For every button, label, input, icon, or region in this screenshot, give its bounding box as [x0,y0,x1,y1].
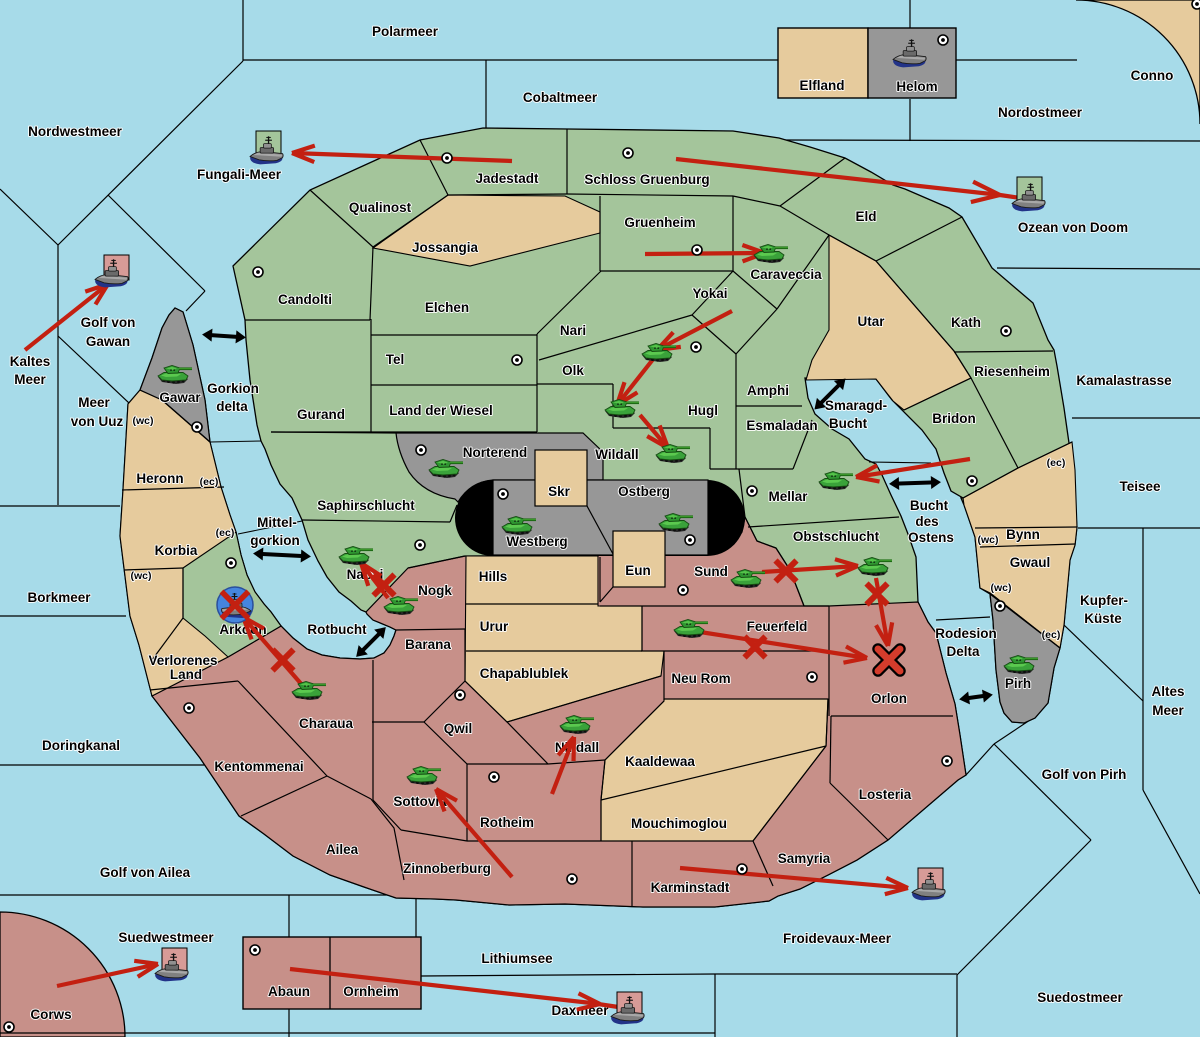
svg-text:Mittel-: Mittel- [257,515,297,530]
svg-text:Delta: Delta [946,644,980,659]
svg-text:Urur: Urur [480,619,509,634]
svg-text:Kupfer-: Kupfer- [1080,593,1128,608]
svg-text:Küste: Küste [1084,611,1122,626]
svg-text:Land: Land [170,667,202,682]
svg-text:Tel: Tel [386,352,405,367]
svg-text:Meer: Meer [14,372,46,387]
svg-text:Meer: Meer [1152,703,1184,718]
svg-text:Golf von Ailea: Golf von Ailea [100,865,191,880]
svg-text:Eld: Eld [855,209,876,224]
svg-text:Conno: Conno [1131,68,1174,83]
svg-text:Riesenheim: Riesenheim [974,364,1050,379]
svg-text:Mellar: Mellar [768,489,808,504]
svg-text:Land der Wiesel: Land der Wiesel [389,403,492,418]
svg-text:Pirh: Pirh [1005,676,1031,691]
svg-text:Heronn: Heronn [136,471,183,486]
svg-text:Helom: Helom [896,79,937,94]
svg-text:Ailea: Ailea [326,842,359,857]
svg-text:Rotbucht: Rotbucht [307,622,367,637]
svg-text:Cobaltmeer: Cobaltmeer [523,90,598,105]
svg-text:Sund: Sund [694,564,728,579]
svg-text:Ostberg: Ostberg [618,484,670,499]
svg-text:Froidevaux-Meer: Froidevaux-Meer [783,931,892,946]
svg-text:Rotheim: Rotheim [480,815,534,830]
svg-text:Rodesion: Rodesion [935,626,997,641]
svg-text:Nari: Nari [560,323,586,338]
svg-text:Kath: Kath [951,315,981,330]
svg-text:Abaun: Abaun [268,984,310,999]
svg-text:Norterend: Norterend [463,445,528,460]
svg-text:Ozean von Doom: Ozean von Doom [1018,220,1128,235]
svg-text:Jossangia: Jossangia [412,240,479,255]
svg-text:Kaaldewaa: Kaaldewaa [625,754,695,769]
svg-text:Gwaul: Gwaul [1010,555,1051,570]
svg-text:(wc): (wc) [978,534,999,546]
svg-text:Schloss Gruenburg: Schloss Gruenburg [584,172,709,187]
svg-text:Korbia: Korbia [155,543,198,558]
svg-text:Doringkanal: Doringkanal [42,738,120,753]
svg-text:Suedwestmeer: Suedwestmeer [118,930,214,945]
svg-text:Ostens: Ostens [908,530,954,545]
svg-text:(ec): (ec) [216,527,235,539]
svg-text:(ec): (ec) [1047,457,1066,469]
svg-text:Corws: Corws [30,1007,71,1022]
svg-text:Saphirschlucht: Saphirschlucht [317,498,415,513]
svg-text:Losteria: Losteria [859,787,912,802]
svg-text:(ec): (ec) [200,476,219,488]
svg-text:(ec): (ec) [1042,629,1061,641]
svg-text:Wildall: Wildall [595,447,638,462]
svg-text:Samyria: Samyria [778,851,831,866]
svg-text:Olk: Olk [562,363,584,378]
svg-text:delta: delta [216,399,248,414]
svg-text:(wc): (wc) [133,415,154,427]
svg-text:Suedostmeer: Suedostmeer [1037,990,1123,1005]
svg-text:Gruenheim: Gruenheim [624,215,695,230]
svg-text:Meer: Meer [78,395,110,410]
svg-text:Altes: Altes [1151,684,1184,699]
svg-text:Kamalastrasse: Kamalastrasse [1076,373,1172,388]
svg-text:Feuerfeld: Feuerfeld [747,619,808,634]
svg-text:Charaua: Charaua [299,716,354,731]
svg-text:Golf von: Golf von [81,315,136,330]
svg-text:Yokai: Yokai [692,286,727,301]
svg-text:Utar: Utar [857,314,885,329]
svg-text:Amphi: Amphi [747,383,789,398]
svg-text:Candolti: Candolti [278,292,332,307]
svg-text:Gawan: Gawan [86,334,130,349]
svg-text:Golf von Pirh: Golf von Pirh [1042,767,1127,782]
svg-text:Westberg: Westberg [506,534,567,549]
svg-text:Obstschlucht: Obstschlucht [793,529,880,544]
svg-text:Barana: Barana [405,637,451,652]
svg-text:von Uuz: von Uuz [71,414,124,429]
svg-text:Lithiumsee: Lithiumsee [481,951,553,966]
svg-text:Elchen: Elchen [425,300,469,315]
svg-text:Teisee: Teisee [1119,479,1161,494]
svg-text:Verlorenes: Verlorenes [148,653,217,668]
svg-text:Karminstadt: Karminstadt [651,880,730,895]
svg-text:Kaltes: Kaltes [10,354,51,369]
svg-text:Bridon: Bridon [932,411,976,426]
svg-text:Fungali-Meer: Fungali-Meer [197,167,282,182]
svg-text:Hugl: Hugl [688,403,718,418]
svg-text:Smaragd-: Smaragd- [825,398,887,413]
svg-text:Gorkion: Gorkion [207,381,259,396]
svg-text:Eun: Eun [625,563,651,578]
svg-text:Qwil: Qwil [444,721,473,736]
svg-text:Nordostmeer: Nordostmeer [998,105,1083,120]
svg-text:Polarmeer: Polarmeer [372,24,439,39]
svg-text:Zinnoberburg: Zinnoberburg [403,861,491,876]
svg-text:Mouchimoglou: Mouchimoglou [631,816,727,831]
svg-text:Neu Rom: Neu Rom [671,671,730,686]
svg-text:Kentommenai: Kentommenai [214,759,303,774]
svg-text:gorkion: gorkion [250,533,300,548]
svg-text:Gawar: Gawar [159,390,201,405]
svg-text:Bucht: Bucht [829,416,868,431]
svg-text:Qualinost: Qualinost [349,200,412,215]
svg-text:Skr: Skr [548,484,571,499]
svg-text:Caraveccia: Caraveccia [750,267,822,282]
svg-text:Hills: Hills [479,569,508,584]
svg-text:Elfland: Elfland [799,78,844,93]
svg-text:Bucht: Bucht [910,498,949,513]
svg-text:des: des [915,514,938,529]
svg-text:Jadestadt: Jadestadt [475,171,539,186]
svg-text:(wc): (wc) [991,582,1012,594]
svg-text:Ornheim: Ornheim [343,984,399,999]
svg-text:Nordwestmeer: Nordwestmeer [28,124,123,139]
svg-text:Borkmeer: Borkmeer [27,590,91,605]
svg-text:(wc): (wc) [131,570,152,582]
svg-text:Nogk: Nogk [418,583,452,598]
svg-text:Esmaladan: Esmaladan [746,418,817,433]
svg-text:Bynn: Bynn [1006,527,1040,542]
svg-text:Gurand: Gurand [297,407,345,422]
svg-text:Orlon: Orlon [871,691,907,706]
svg-text:Chapablublek: Chapablublek [480,666,569,681]
